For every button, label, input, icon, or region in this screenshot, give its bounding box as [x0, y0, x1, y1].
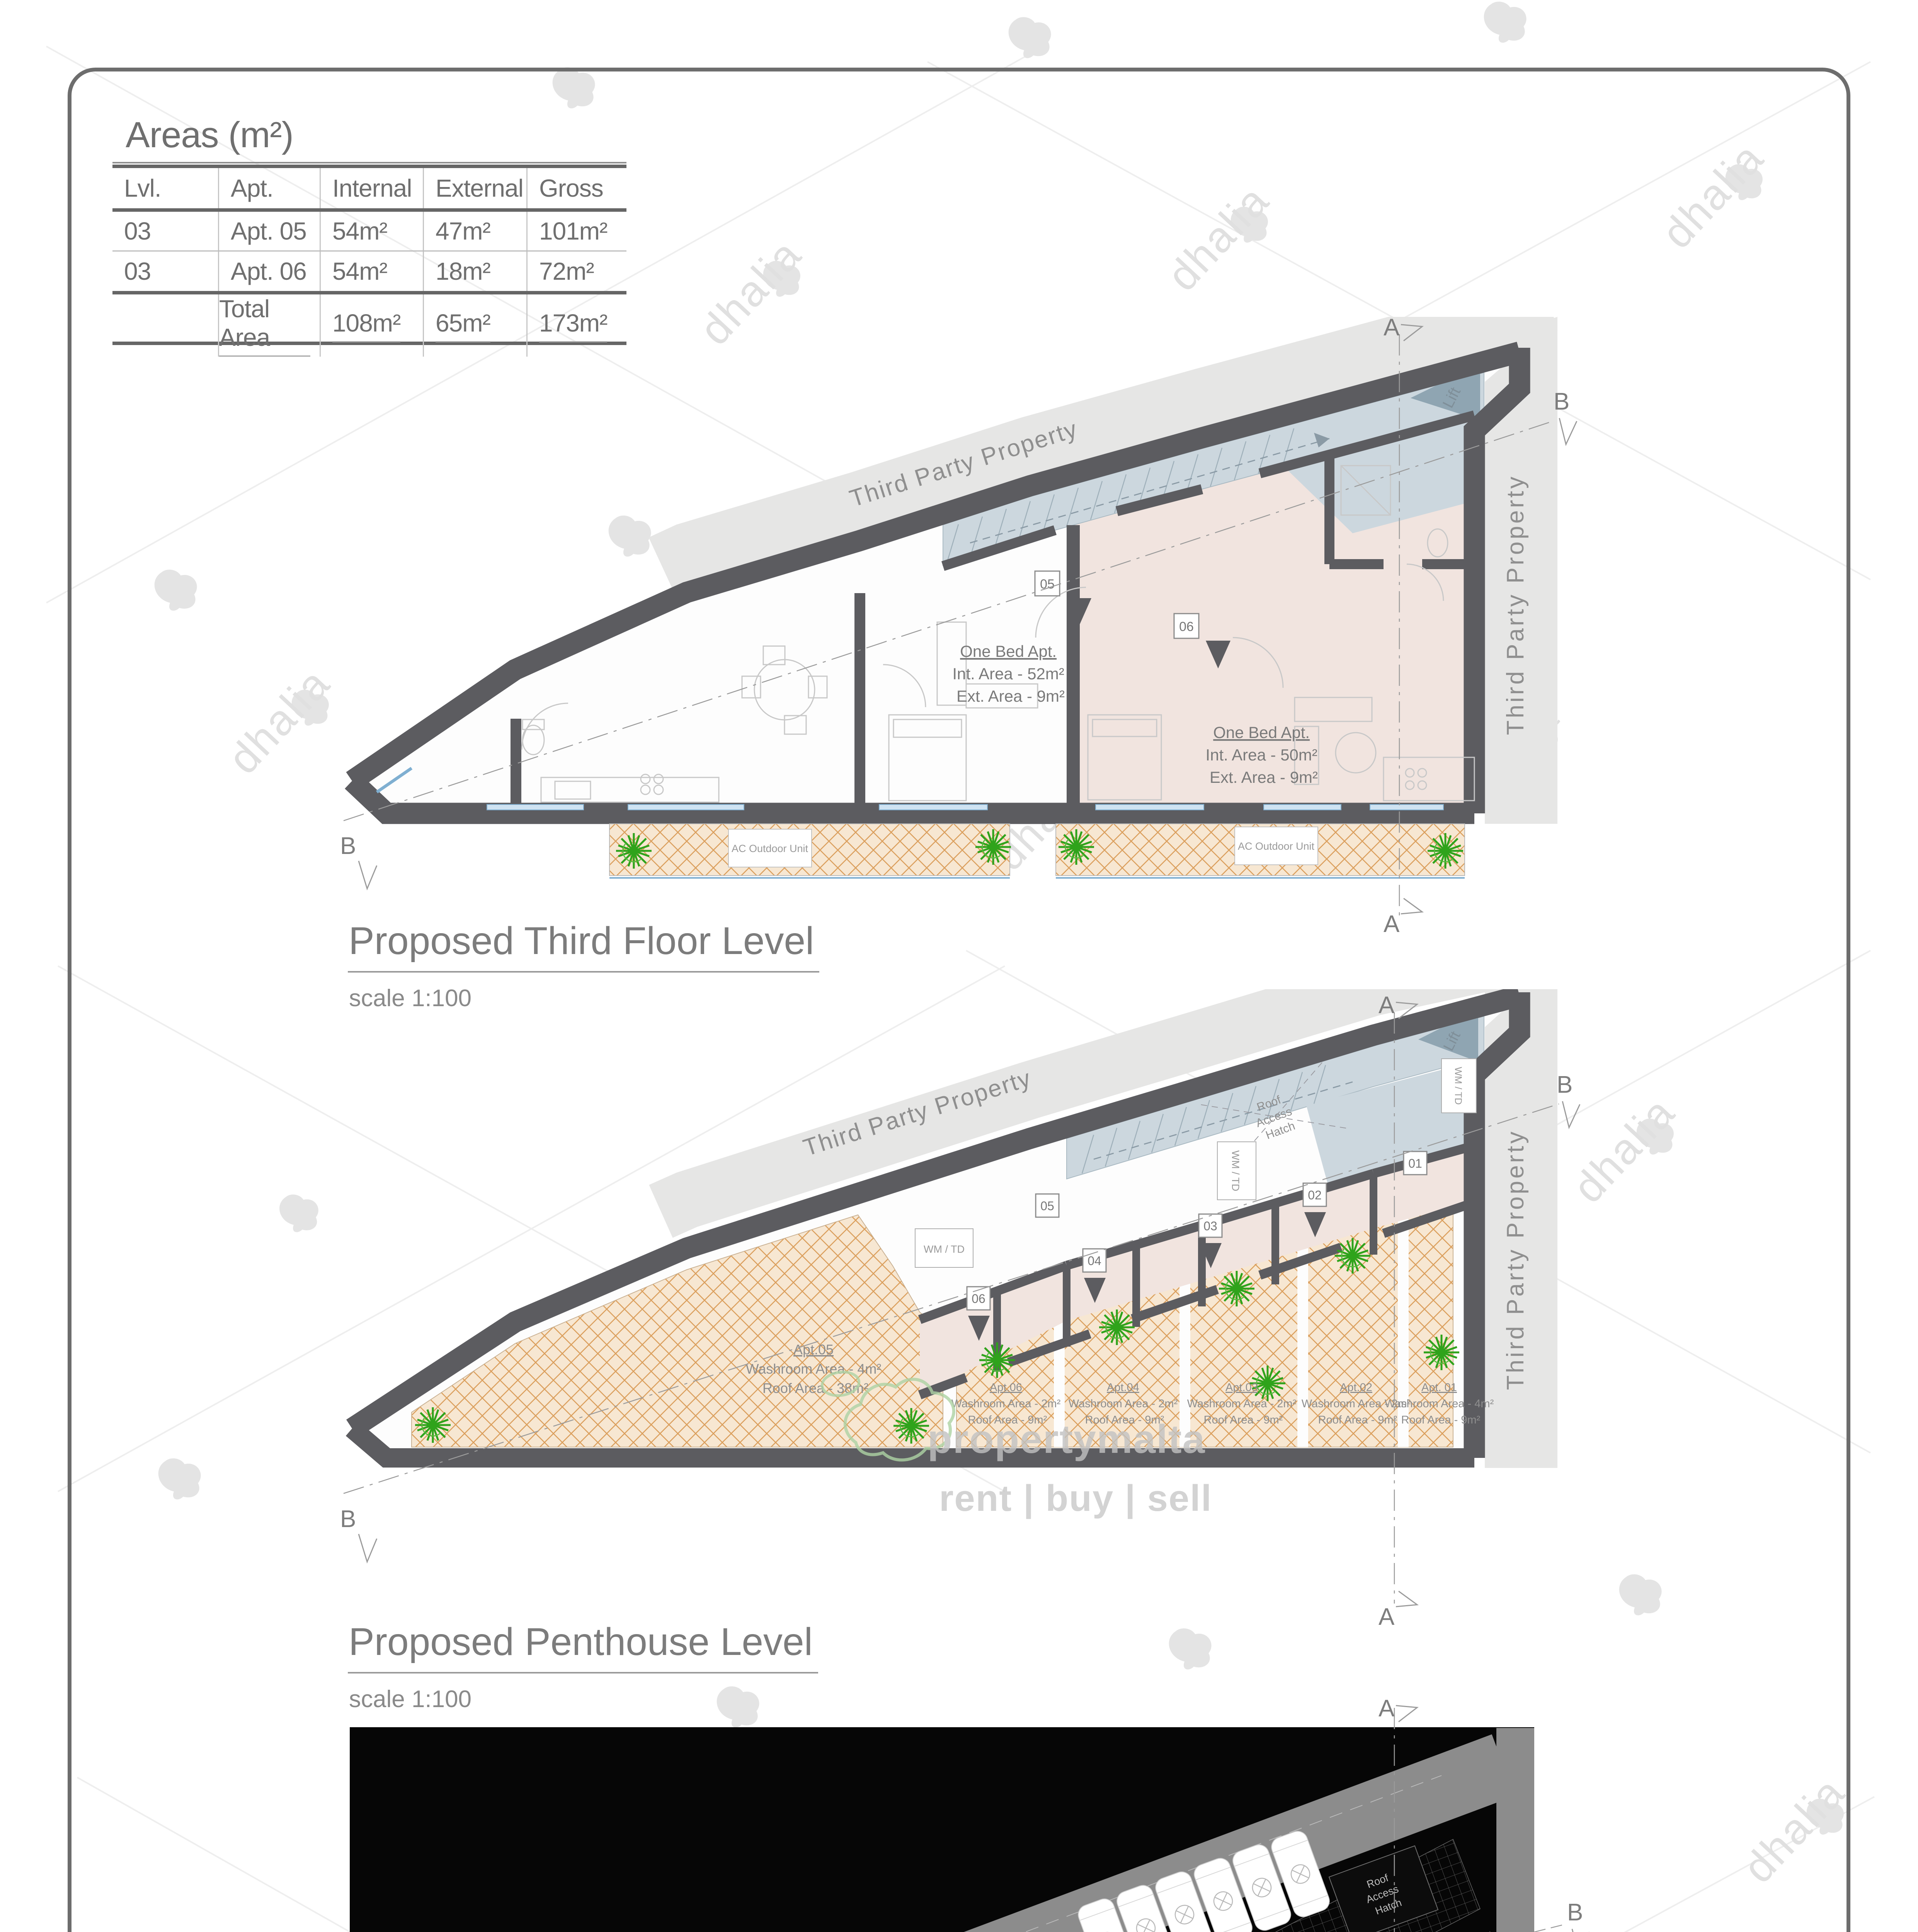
penthouse-plan: Lift Roof Access Hatch WM / TD WM / TD W…	[340, 989, 1604, 1627]
svg-text:02: 02	[1308, 1188, 1322, 1202]
cell-gross: 72m²	[526, 252, 625, 291]
areas-table-header: Lvl. Apt. Internal External Gross	[112, 168, 626, 212]
svg-text:04: 04	[1087, 1254, 1101, 1268]
areas-table-title: Areas (m²)	[112, 114, 626, 163]
section-a-bottom: A	[1384, 911, 1400, 935]
total-label-cell: Total Area	[218, 294, 320, 357]
section-a-bottom: A	[1379, 1604, 1395, 1627]
cell-apt: Apt. 05	[218, 212, 320, 250]
ac-unit-label: AC Outdoor Unit	[732, 843, 808, 854]
apt05-label: One Bed Apt. Int. Area - 52m² Ext. Area …	[952, 642, 1069, 705]
roof-plan: Roof Access Hatch A A B B	[340, 1692, 1604, 1932]
section-b-left: B	[340, 833, 356, 859]
third-floor-title: Proposed Third Floor Level	[348, 919, 819, 973]
door-tag-06: 06	[1179, 619, 1194, 634]
cell-external: 18m²	[423, 252, 526, 291]
col-header-lvl: Lvl.	[112, 168, 218, 208]
section-a-top: A	[1379, 1695, 1395, 1722]
col-header-internal: Internal	[320, 168, 423, 208]
svg-text:03: 03	[1203, 1219, 1217, 1233]
svg-text:01: 01	[1408, 1156, 1422, 1170]
cell-internal: 54m²	[320, 252, 423, 291]
section-a-top: A	[1379, 992, 1395, 1019]
ac-unit-label: AC Outdoor Unit	[1238, 840, 1315, 852]
section-b-right: B	[1554, 388, 1569, 415]
apt06-label: One Bed Apt. Int. Area - 50m² Ext. Area …	[1205, 723, 1322, 786]
roof-band-right	[1496, 1728, 1534, 1932]
svg-text:WM / TD: WM / TD	[924, 1243, 965, 1255]
cell-gross: 101m²	[526, 212, 625, 250]
cell-lvl: 03	[112, 212, 218, 250]
svg-text:WM / TD: WM / TD	[1230, 1150, 1241, 1191]
section-a-top: A	[1384, 317, 1400, 341]
section-b-right: B	[1557, 1071, 1573, 1098]
third-party-label-right: Third Party Property	[1502, 1129, 1529, 1390]
col-header-apt: Apt.	[218, 168, 320, 208]
svg-text:05: 05	[1040, 1199, 1054, 1213]
third-party-label-right: Third Party Property	[1502, 474, 1529, 735]
table-row: 03 Apt. 06 54m² 18m² 72m²	[112, 252, 626, 294]
col-header-external: External	[423, 168, 526, 208]
table-row: 03 Apt. 05 54m² 47m² 101m²	[112, 212, 626, 252]
areas-table: Areas (m²) Lvl. Apt. Internal External G…	[112, 114, 626, 345]
section-b-left: B	[340, 1506, 356, 1532]
penthouse-title: Proposed Penthouse Level	[348, 1620, 818, 1673]
drawing-sheet: { "areas_table": { "title": "Areas (m²)"…	[0, 0, 1918, 1932]
penthouse-scale: scale 1:100	[349, 1685, 471, 1713]
cell-lvl: 03	[112, 252, 218, 291]
balconies: AC Outdoor Unit AC Outdoor Unit	[609, 824, 1465, 878]
third-floor-scale: scale 1:100	[349, 985, 471, 1012]
svg-text:06: 06	[972, 1292, 985, 1306]
cell-apt: Apt. 06	[218, 252, 320, 291]
svg-text:WM / TD: WM / TD	[1453, 1067, 1464, 1105]
cell-internal: 54m²	[320, 212, 423, 250]
section-b-right: B	[1567, 1899, 1583, 1926]
col-header-gross: Gross	[526, 168, 625, 208]
third-floor-plan: Lift AC Outdoor Unit AC Outdoor Unit	[340, 317, 1604, 935]
cell-external: 47m²	[423, 212, 526, 250]
